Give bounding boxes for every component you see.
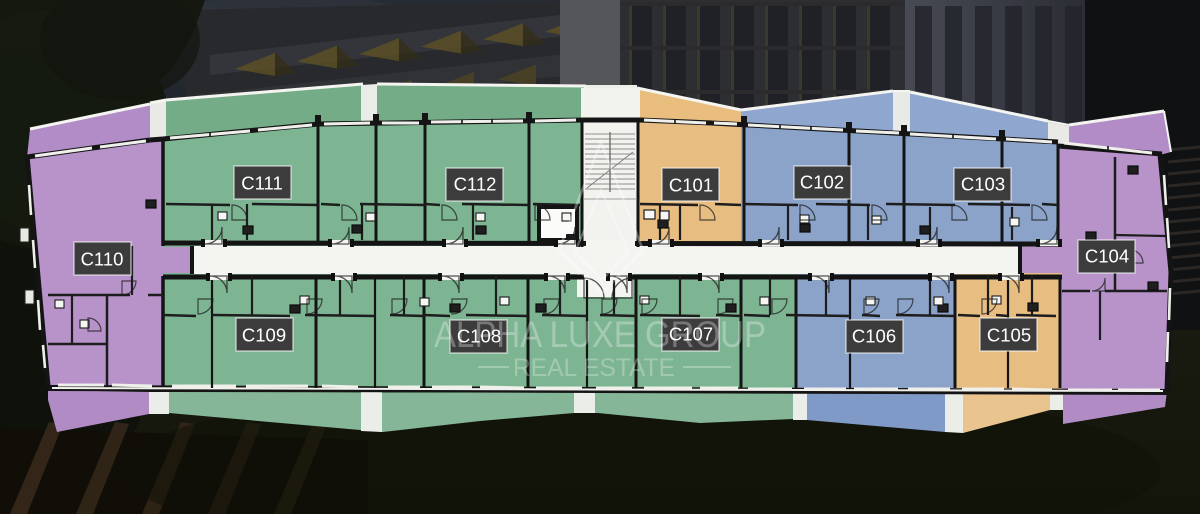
svg-text:REAL ESTATE: REAL ESTATE xyxy=(513,354,675,382)
svg-text:C110: C110 xyxy=(81,249,124,270)
svg-text:C102: C102 xyxy=(800,172,844,193)
svg-text:C104: C104 xyxy=(1085,246,1129,267)
svg-text:ALPHA LUXE GROUP: ALPHA LUXE GROUP xyxy=(434,314,766,355)
svg-text:C103: C103 xyxy=(961,174,1005,195)
svg-text:C101: C101 xyxy=(669,175,713,196)
svg-text:C106: C106 xyxy=(852,326,896,347)
svg-text:C105: C105 xyxy=(987,325,1031,346)
svg-text:C112: C112 xyxy=(454,174,497,195)
svg-text:C111: C111 xyxy=(241,173,282,194)
svg-text:C109: C109 xyxy=(242,325,286,346)
